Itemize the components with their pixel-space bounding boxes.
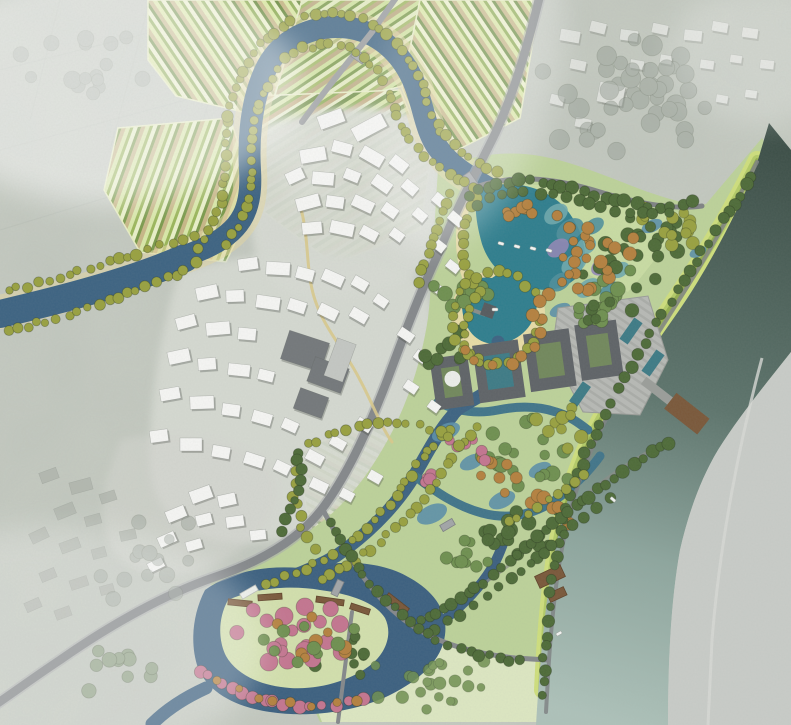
master-plan-map: [0, 0, 791, 725]
fine-grain-texture: [0, 0, 791, 725]
plan-canvas: [0, 0, 791, 725]
